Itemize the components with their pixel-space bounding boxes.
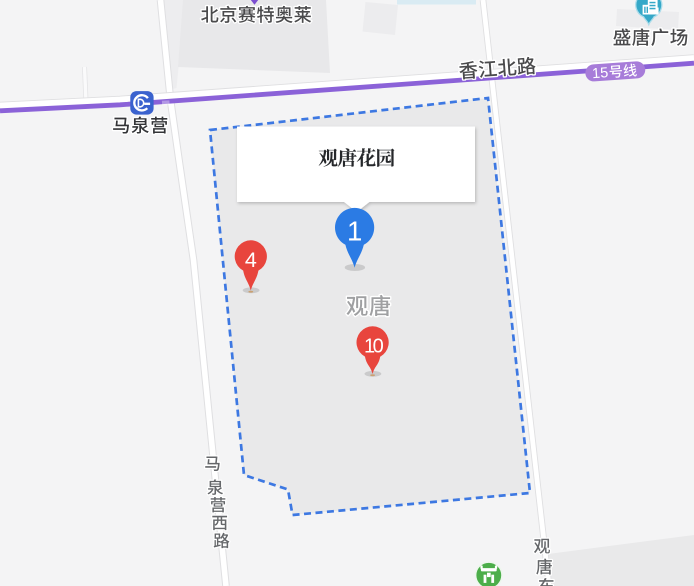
svg-text:4: 4 — [245, 248, 257, 272]
svg-text:1: 1 — [347, 216, 362, 247]
svg-text:10: 10 — [364, 335, 384, 357]
svg-text:15: 15 — [592, 65, 609, 82]
